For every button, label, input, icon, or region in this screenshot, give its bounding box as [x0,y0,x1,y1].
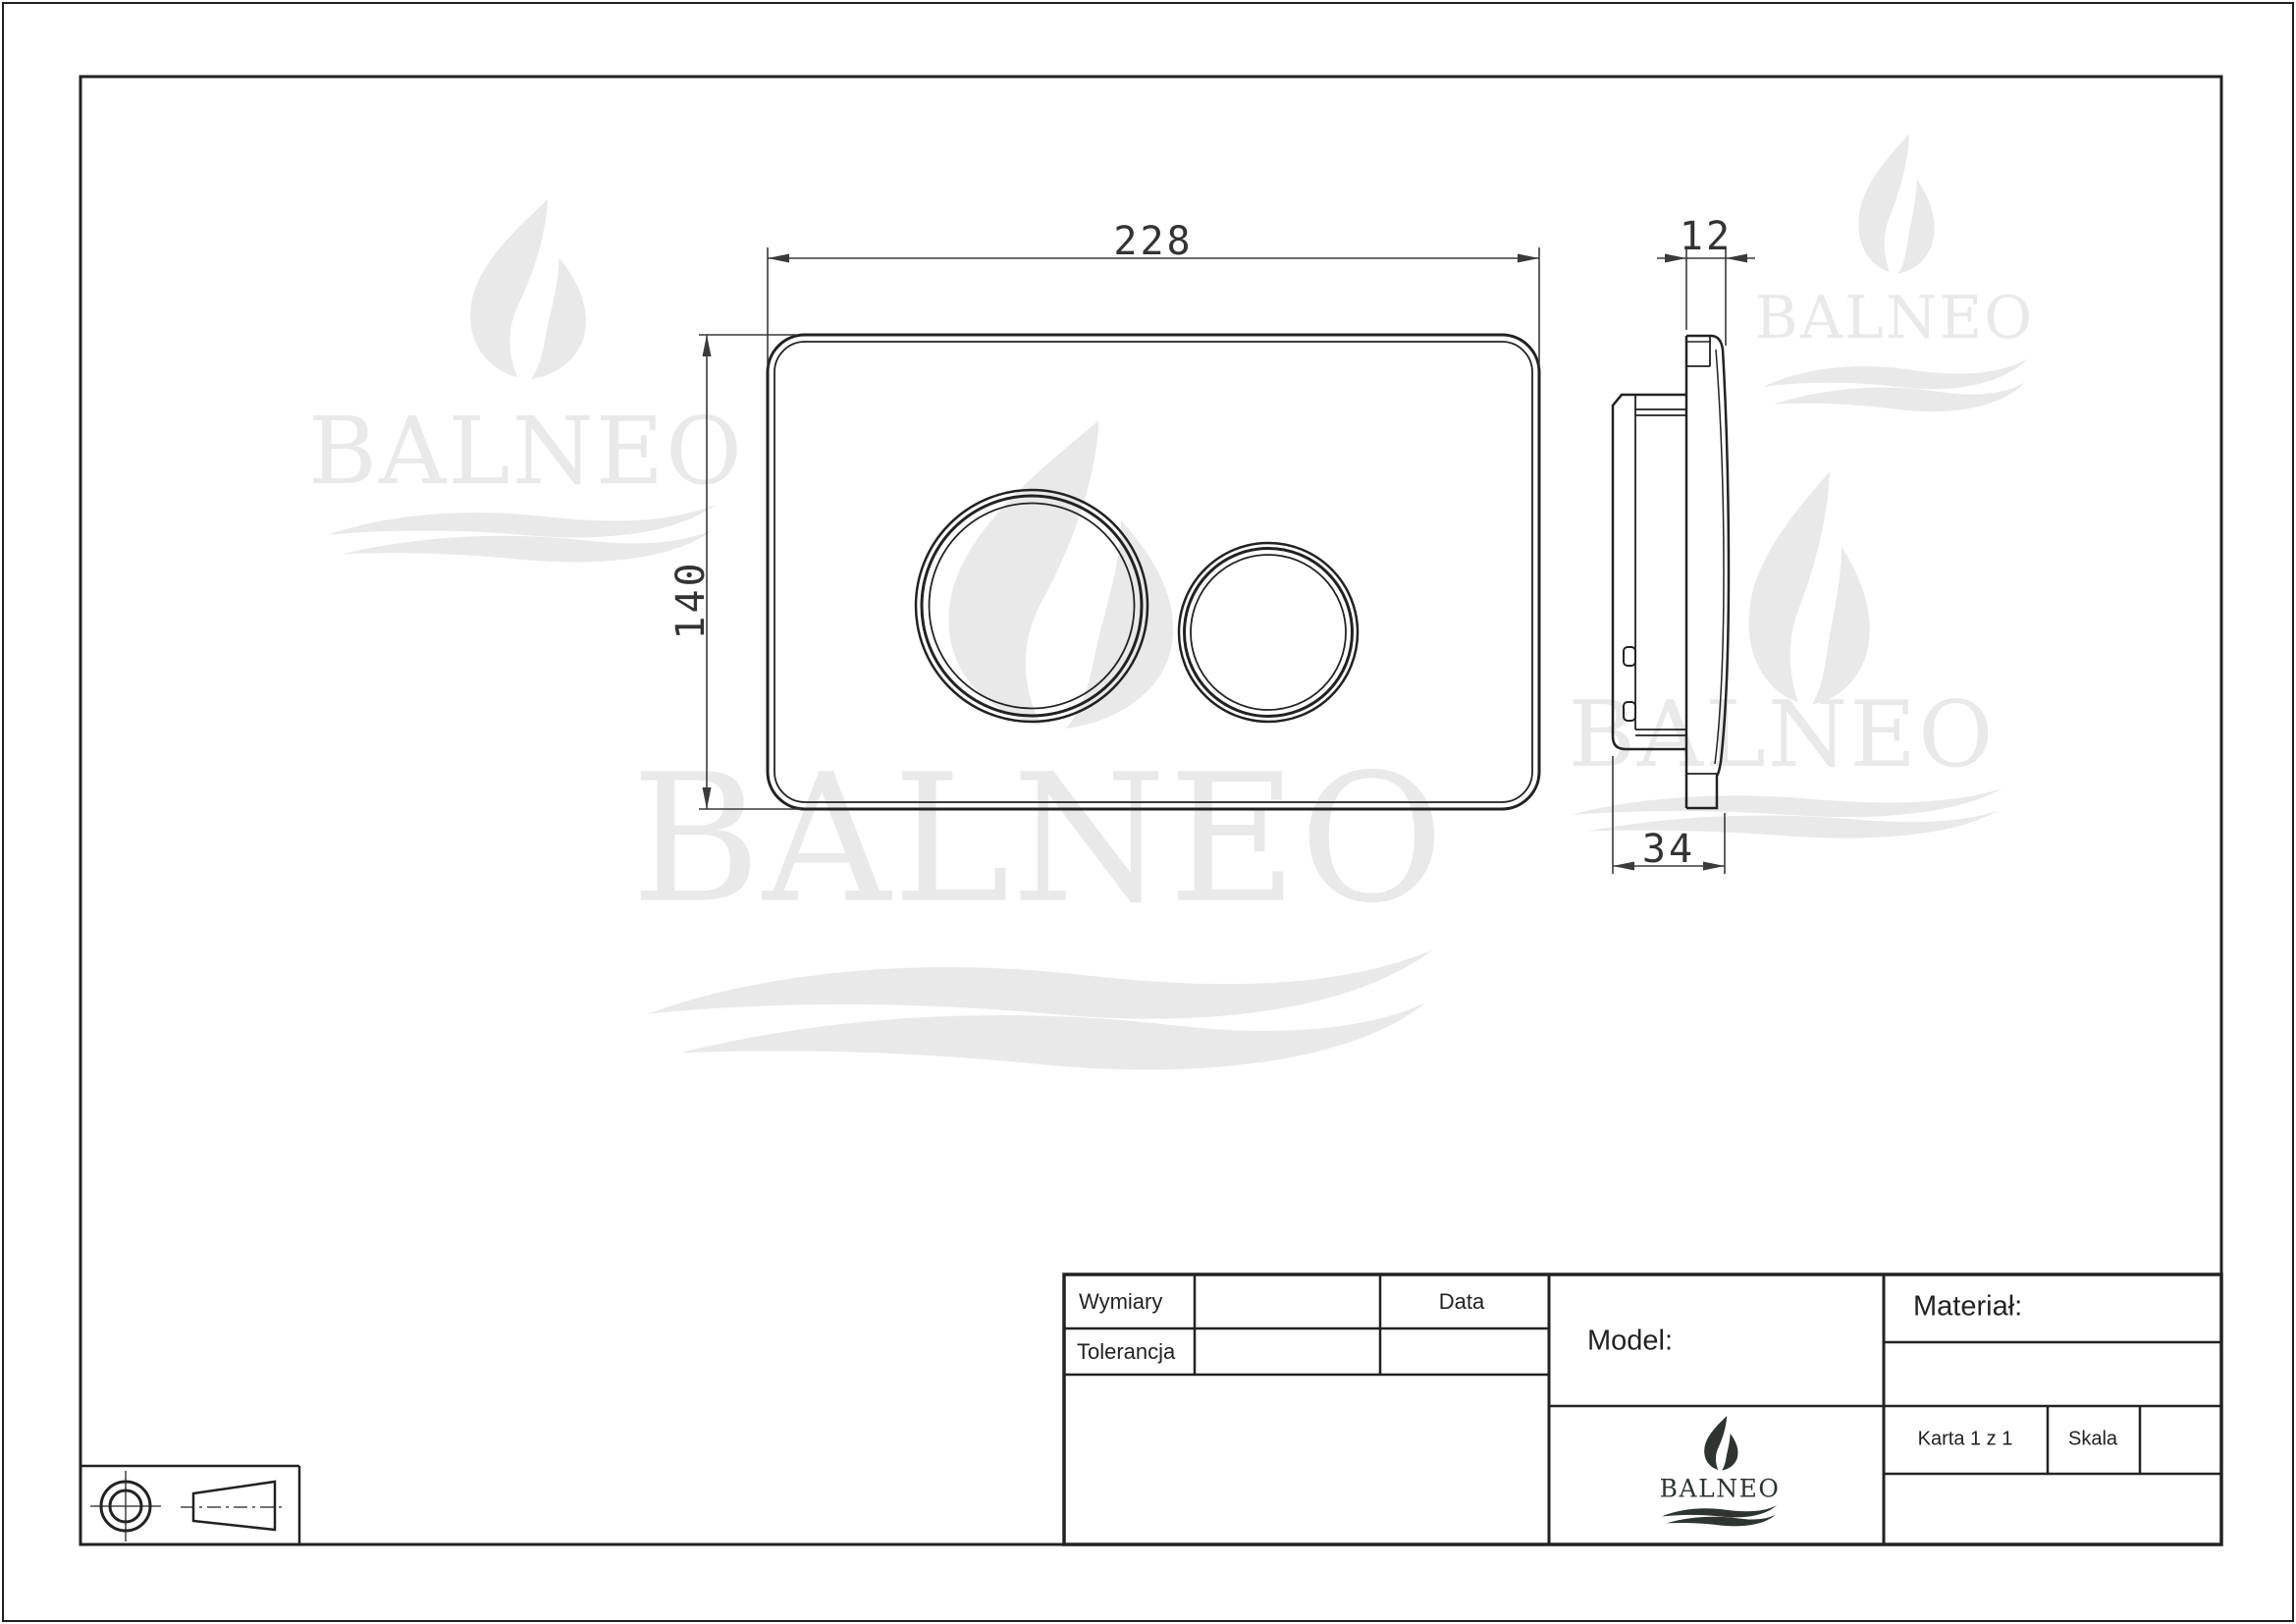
dim-thickness-value: 12 [1680,214,1733,259]
title-block-wymiary-label: Wymiary [1079,1289,1162,1315]
title-block-skala-label: Skala [2068,1429,2117,1451]
drawing-sheet: BALNEO BALNEO BALNEO BALNEO [0,0,2296,1624]
text-layer: 228 140 12 34 Wymiary Tolerancja Data Mo… [0,0,2296,1624]
dim-depth-value: 34 [1642,827,1695,872]
title-block-brand-wordmark: BALNEO [1660,1475,1781,1503]
title-block-data-label: Data [1439,1289,1484,1315]
dim-height-value: 140 [668,560,714,639]
title-block-tolerancja-label: Tolerancja [1077,1339,1175,1365]
title-block-material-label: Materiał: [1913,1291,2022,1324]
title-block-karta-label: Karta 1 z 1 [1918,1429,2013,1451]
title-block-model-label: Model: [1587,1326,1673,1358]
dim-width-value: 228 [1113,219,1193,264]
